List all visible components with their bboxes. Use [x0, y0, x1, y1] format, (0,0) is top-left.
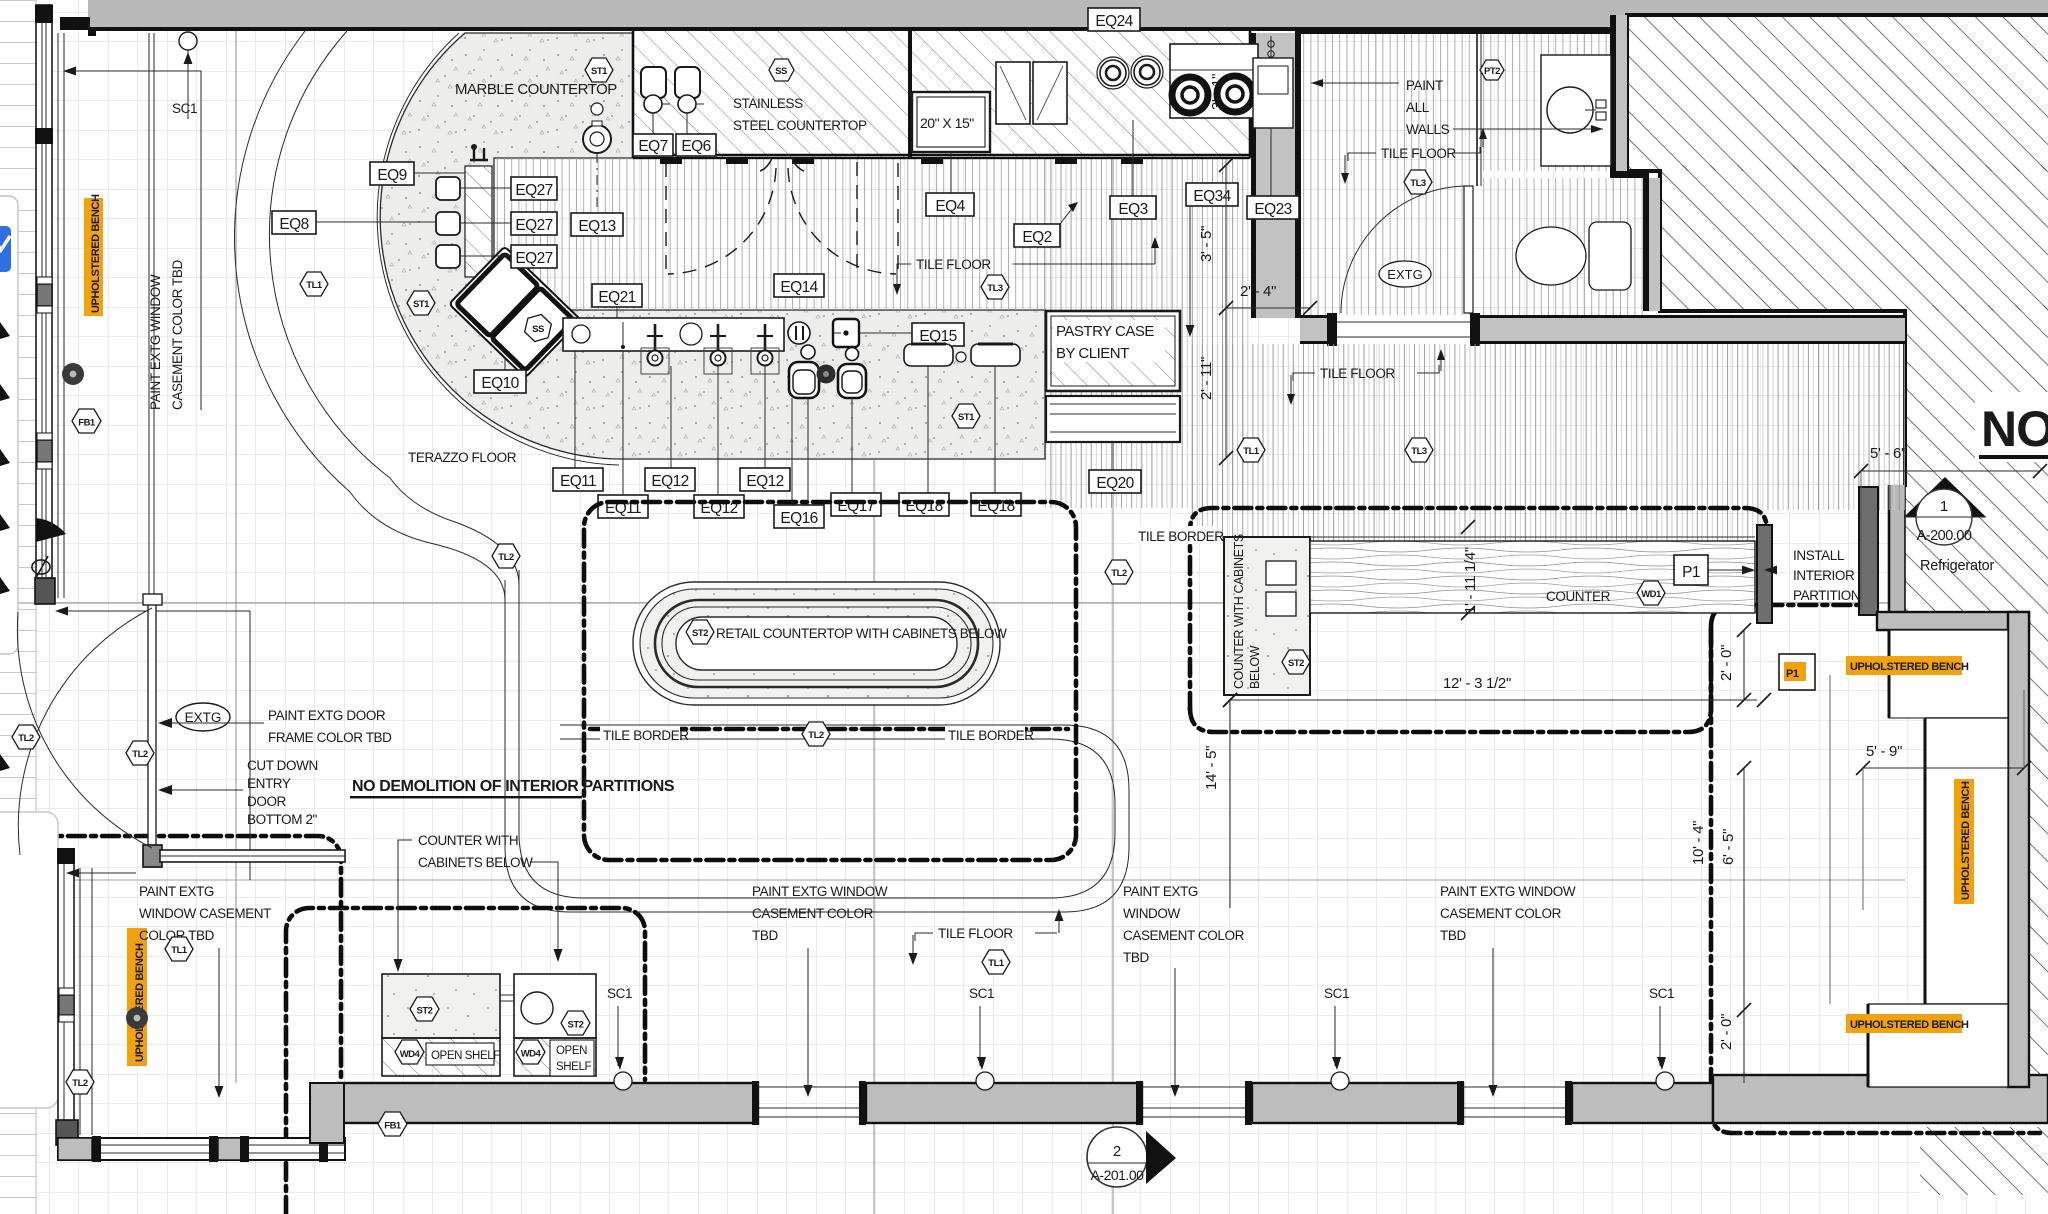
svg-text:TL3: TL3 [987, 283, 1003, 294]
svg-text:TL1: TL1 [988, 958, 1005, 969]
svg-text:EQ21: EQ21 [598, 289, 635, 306]
svg-text:EXTG: EXTG [1387, 267, 1422, 282]
svg-text:TL1: TL1 [171, 945, 188, 956]
svg-text:Refrigerator: Refrigerator [1920, 558, 1995, 574]
svg-text:TL3: TL3 [1410, 178, 1426, 189]
svg-text:PAINT: PAINT [1406, 78, 1443, 93]
svg-text:TILE FLOOR: TILE FLOOR [1320, 366, 1395, 381]
svg-text:EQ4: EQ4 [935, 198, 965, 215]
svg-text:ST2: ST2 [1288, 658, 1304, 669]
svg-text:PAINT EXTG WINDOW: PAINT EXTG WINDOW [148, 274, 163, 410]
svg-text:EQ15: EQ15 [919, 328, 956, 345]
svg-text:COUNTER: COUNTER [1546, 589, 1611, 604]
svg-text:CASEMENT COLOR: CASEMENT COLOR [1123, 928, 1245, 943]
svg-text:FB1: FB1 [384, 1121, 402, 1132]
svg-text:5' - 9": 5' - 9" [1866, 743, 1902, 760]
svg-text:TILE FLOOR: TILE FLOOR [916, 257, 991, 272]
svg-text:EQ12: EQ12 [651, 473, 688, 490]
svg-text:UPHOLSTERED BENCH: UPHOLSTERED BENCH [1850, 661, 1969, 673]
svg-text:BOTTOM 2": BOTTOM 2" [247, 812, 318, 827]
svg-text:WD4: WD4 [521, 1049, 542, 1060]
svg-text:FRAME COLOR TBD: FRAME COLOR TBD [268, 730, 392, 745]
svg-text:TILE FLOOR: TILE FLOOR [938, 926, 1013, 941]
svg-text:TL2: TL2 [1111, 568, 1127, 579]
svg-text:TILE BORDER: TILE BORDER [1138, 529, 1224, 544]
svg-text:STEEL COUNTERTOP: STEEL COUNTERTOP [733, 118, 867, 133]
svg-text:PAINT EXTG DOOR: PAINT EXTG DOOR [268, 708, 386, 723]
svg-text:2' - 0": 2' - 0" [1718, 645, 1735, 681]
svg-text:ST2: ST2 [692, 628, 708, 639]
svg-text:NO: NO [1981, 401, 2048, 457]
svg-text:UPHOLSTERED BENCH: UPHOLSTERED BENCH [90, 194, 102, 313]
svg-text:SC1: SC1 [1649, 986, 1674, 1001]
svg-text:PASTRY CASE: PASTRY CASE [1056, 323, 1154, 340]
svg-text:TL1: TL1 [306, 280, 323, 291]
svg-text:EQ27: EQ27 [515, 250, 552, 267]
svg-text:OPEN: OPEN [556, 1045, 587, 1057]
svg-text:SS: SS [775, 66, 787, 77]
svg-text:2: 2 [1113, 1143, 1121, 1160]
svg-text:ENTRY: ENTRY [247, 776, 291, 791]
svg-text:A-201.00: A-201.00 [1091, 1167, 1145, 1183]
svg-text:CUT DOWN: CUT DOWN [247, 758, 318, 773]
svg-text:P1: P1 [1786, 668, 1799, 680]
svg-text:1: 1 [1940, 498, 1948, 515]
svg-text:EQ24: EQ24 [1095, 13, 1133, 30]
svg-text:TL2: TL2 [808, 730, 824, 741]
svg-text:EQ27: EQ27 [515, 182, 552, 199]
svg-text:EQ6: EQ6 [681, 138, 710, 155]
svg-text:EQ11: EQ11 [560, 473, 596, 490]
svg-text:CASEMENT COLOR TBD: CASEMENT COLOR TBD [170, 260, 185, 410]
svg-text:SC1: SC1 [607, 986, 632, 1001]
svg-text:DOOR: DOOR [247, 794, 287, 809]
svg-text:SC1: SC1 [172, 101, 197, 116]
svg-text:TL2: TL2 [498, 552, 514, 563]
svg-text:EQ8: EQ8 [279, 216, 308, 233]
svg-text:EQ20: EQ20 [1096, 475, 1134, 492]
svg-text:CABINETS BELOW: CABINETS BELOW [418, 855, 533, 870]
svg-text:CASEMENT COLOR: CASEMENT COLOR [1440, 906, 1562, 921]
svg-text:TILE BORDER: TILE BORDER [603, 728, 689, 743]
svg-text:12' - 3 1/2": 12' - 3 1/2" [1443, 675, 1511, 692]
svg-text:EQ2: EQ2 [1022, 229, 1051, 246]
svg-text:EQ14: EQ14 [780, 279, 818, 296]
svg-text:TBD: TBD [752, 928, 778, 943]
svg-text:TL3: TL3 [1411, 446, 1427, 457]
svg-text:RETAIL COUNTERTOP WITH CABINE: RETAIL COUNTERTOP WITH CABINETS BELOW [716, 626, 1007, 641]
svg-text:10' - 4": 10' - 4" [1690, 821, 1707, 865]
svg-text:5' - 6": 5' - 6" [1870, 445, 1906, 462]
svg-text:WD1: WD1 [1641, 589, 1662, 600]
svg-text:ALL: ALL [1406, 100, 1430, 115]
svg-text:SS: SS [532, 324, 544, 335]
svg-text:PARTITION: PARTITION [1793, 588, 1860, 603]
svg-text:INSTALL: INSTALL [1793, 548, 1845, 563]
svg-text:STAINLESS: STAINLESS [733, 96, 803, 111]
svg-text:UPHOLSTERED BENCH: UPHOLSTERED BENCH [134, 943, 146, 1062]
svg-text:MARBLE COUNTERTOP: MARBLE COUNTERTOP [455, 81, 617, 98]
svg-text:TL1: TL1 [1243, 446, 1260, 457]
svg-text:ST2: ST2 [568, 1020, 584, 1031]
svg-text:PAINT EXTG WINDOW: PAINT EXTG WINDOW [752, 884, 888, 899]
svg-text:WD4: WD4 [400, 1049, 421, 1060]
svg-text:TERAZZO FLOOR: TERAZZO FLOOR [408, 450, 517, 465]
svg-text:TBD: TBD [1440, 928, 1466, 943]
svg-text:3' - 5": 3' - 5" [1198, 226, 1215, 262]
svg-text:WINDOW CASEMENT: WINDOW CASEMENT [139, 906, 271, 921]
svg-text:CASEMENT COLOR: CASEMENT COLOR [752, 906, 874, 921]
svg-text:FB1: FB1 [78, 418, 96, 429]
svg-text:PAINT EXTG WINDOW: PAINT EXTG WINDOW [1440, 884, 1576, 899]
svg-text:ST1: ST1 [591, 66, 608, 77]
svg-text:BELOW: BELOW [1248, 645, 1262, 689]
svg-text:INTERIOR: INTERIOR [1793, 568, 1855, 583]
svg-text:TILE FLOOR: TILE FLOOR [1381, 146, 1456, 161]
svg-text:EQ27: EQ27 [515, 217, 552, 234]
svg-text:TL2: TL2 [72, 1078, 88, 1089]
svg-text:3' - 1": 3' - 1" [1209, 74, 1226, 110]
svg-text:BY CLIENT: BY CLIENT [1056, 345, 1129, 362]
svg-text:EQ23: EQ23 [1254, 201, 1291, 218]
svg-text:P1: P1 [1682, 564, 1700, 581]
svg-text:2' - 11": 2' - 11" [1198, 357, 1215, 400]
svg-text:NO DEMOLITION OF INTERIOR PART: NO DEMOLITION OF INTERIOR PARTITIONS [352, 778, 675, 795]
svg-text:2' - 0": 2' - 0" [1718, 1014, 1735, 1050]
svg-text:TBD: TBD [1123, 950, 1149, 965]
svg-text:TL2: TL2 [18, 733, 34, 744]
svg-text:PAINT EXTG: PAINT EXTG [139, 884, 214, 899]
svg-text:SC1: SC1 [1324, 986, 1349, 1001]
svg-text:EQ12: EQ12 [746, 473, 783, 490]
svg-text:SC1: SC1 [969, 986, 994, 1001]
svg-text:2' - 4": 2' - 4" [1240, 283, 1276, 300]
svg-text:EQ16: EQ16 [780, 510, 817, 527]
svg-text:ST1: ST1 [413, 299, 430, 310]
svg-text:6' - 5": 6' - 5" [1720, 829, 1737, 865]
svg-text:UPHOLSTERED BENCH: UPHOLSTERED BENCH [1850, 1019, 1969, 1031]
svg-text:20" X 15": 20" X 15" [920, 115, 974, 131]
svg-text:UPHOLSTERED BENCH: UPHOLSTERED BENCH [1960, 781, 1972, 900]
svg-text:COUNTER WITH: COUNTER WITH [418, 833, 518, 848]
svg-text:WINDOW: WINDOW [1123, 906, 1180, 921]
svg-text:EQ3: EQ3 [1118, 201, 1147, 218]
svg-text:WALLS: WALLS [1406, 122, 1450, 137]
svg-text:ST2: ST2 [417, 1006, 433, 1017]
svg-text:EQ9: EQ9 [377, 167, 406, 184]
svg-text:EQ7: EQ7 [638, 138, 667, 155]
svg-text:EQ13: EQ13 [578, 218, 615, 235]
svg-text:PT2: PT2 [1484, 66, 1500, 77]
svg-text:14' - 5": 14' - 5" [1203, 746, 1220, 790]
svg-text:TL2: TL2 [132, 749, 148, 760]
svg-text:A-200.00: A-200.00 [1917, 528, 1972, 544]
svg-text:COUNTER WITH CABINETS: COUNTER WITH CABINETS [1232, 534, 1246, 689]
svg-text:OPEN SHELF: OPEN SHELF [431, 1050, 500, 1062]
svg-text:ST1: ST1 [958, 412, 975, 423]
svg-text:SHELF: SHELF [556, 1061, 591, 1073]
svg-text:EQ10: EQ10 [481, 375, 519, 392]
svg-text:PAINT EXTG: PAINT EXTG [1123, 884, 1198, 899]
svg-text:TILE BORDER: TILE BORDER [948, 728, 1034, 743]
svg-text:1' - 11 1/4": 1' - 11 1/4" [1462, 547, 1479, 614]
